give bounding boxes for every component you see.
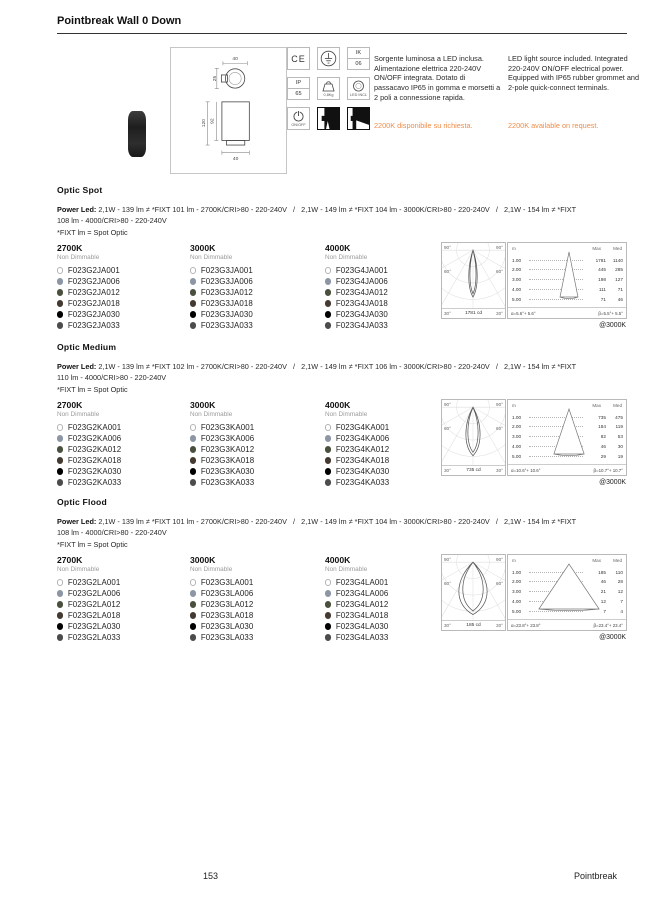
product-code-row: F023G3KA012: [190, 444, 322, 455]
finish-color-dot: [57, 424, 63, 430]
product-code: F023G4KA001: [336, 423, 389, 432]
product-code-row: F023G3KA030: [190, 466, 322, 477]
polar-diagram: 90° 90° 60° 60° 30° 1781 cd 30°: [441, 242, 506, 319]
product-code-row: F023G2KA018: [57, 455, 189, 466]
product-code: F023G2JA030: [68, 310, 120, 319]
product-code: F023G2LA018: [68, 611, 120, 620]
power-led-spec: Power Led: 2,1W - 139 lm ≠ *FIXT 101 lm …: [57, 205, 585, 227]
code-list: F023G3JA001 F023G3JA006 F023: [190, 265, 322, 331]
product-code: F023G2JA012: [68, 288, 120, 297]
optic-section: Optic Medium Power Led: 2,1W - 139 lm ≠ …: [57, 342, 627, 494]
product-code-row: F023G3KA033: [190, 477, 322, 488]
fixt-note: *FIXT lm = Spot Optic: [57, 385, 128, 394]
product-code: F023G2JA001: [68, 266, 120, 275]
finish-color-dot: [57, 435, 63, 441]
lux-med: 1140: [606, 258, 623, 263]
product-code: F023G2LA001: [68, 578, 120, 587]
class-1-earth-icon: [317, 47, 340, 70]
dimming-label: Non Dimmable: [57, 411, 189, 418]
distance-m: 4.00: [512, 599, 526, 604]
product-code: F023G4KA012: [336, 445, 389, 454]
product-code-row: F023G2KA012: [57, 444, 189, 455]
dim-bottom-width: 40: [233, 156, 239, 162]
color-temp-header: 4000K: [325, 555, 457, 565]
lux-med: 127: [606, 277, 623, 282]
product-code: F023G3KA018: [201, 456, 254, 465]
product-code: F023G2KA030: [68, 467, 121, 476]
code-list: F023G3LA001 F023G3LA006 F023: [190, 577, 322, 643]
finish-color-dot: [57, 278, 63, 284]
product-code: F023G3JA018: [201, 299, 253, 308]
product-code-row: F023G2KA006: [57, 433, 189, 444]
emission-down-flood-icon: [347, 107, 370, 130]
product-code: F023G4LA012: [336, 600, 388, 609]
distance-m: 5.00: [512, 454, 526, 459]
code-list: F023G2JA001 F023G2JA006 F023: [57, 265, 189, 331]
color-temp-header: 4000K: [325, 400, 457, 410]
distance-m: 1.00: [512, 258, 526, 263]
certification-icons: CE IK 06 IP 65 0,8Kg LED: [287, 47, 370, 130]
finish-color-dot: [190, 612, 196, 618]
code-list: F023G3KA001 F023G3KA006 F023: [190, 422, 322, 488]
finish-color-dot: [325, 322, 331, 328]
cone-diagram: m Max Med 1.00 1781 1140: [507, 242, 627, 319]
cone-diagram: m Max Med 1.00 185 110: [507, 554, 627, 631]
product-code: F023G2JA018: [68, 299, 120, 308]
beam-cone-svg: [534, 250, 604, 306]
product-code-row: F023G3JA006: [190, 276, 322, 287]
lux-med: 285: [606, 267, 623, 272]
dimming-label: Non Dimmable: [325, 411, 457, 418]
page-number: 153: [203, 871, 218, 881]
lux-med: 475: [606, 415, 623, 420]
finish-color-dot: [325, 634, 331, 640]
emission-down-spot-icon: [317, 107, 340, 130]
finish-color-dot: [325, 468, 331, 474]
product-code: F023G3JA006: [201, 277, 253, 286]
finish-color-dot: [57, 311, 63, 317]
finish-color-dot: [57, 612, 63, 618]
candela-value: 1781 cd: [465, 311, 482, 316]
lux-med: 53: [606, 434, 623, 439]
polar-diagram: 90° 90° 60° 60° 30° 185 cd 30°: [441, 554, 506, 631]
dim-total-height: 120: [201, 119, 207, 127]
dimming-label: Non Dimmable: [325, 254, 457, 261]
product-code-row: F023G4JA001: [325, 265, 457, 276]
product-code: F023G2KA006: [68, 434, 121, 443]
product-code-row: F023G4LA001: [325, 577, 457, 588]
finish-color-dot: [325, 457, 331, 463]
dimming-label: Non Dimmable: [190, 254, 322, 261]
product-code-row: F023G3JA018: [190, 298, 322, 309]
finish-color-dot: [190, 634, 196, 640]
product-code-row: F023G2JA030: [57, 309, 189, 320]
lux-med: 71: [606, 287, 623, 292]
code-list: F023G4LA001 F023G4LA006 F023: [325, 577, 457, 643]
cone-diagram: m Max Med 1.00 735 475: [507, 399, 627, 476]
finish-color-dot: [57, 322, 63, 328]
finish-color-dot: [57, 479, 63, 485]
product-code-row: F023G4KA033: [325, 477, 457, 488]
product-code: F023G3KA012: [201, 445, 254, 454]
reference-temp: @3000K: [599, 479, 626, 486]
finish-color-dot: [57, 590, 63, 596]
dimming-label: Non Dimmable: [190, 566, 322, 573]
description-italian: Sorgente luminosa a LED inclusa. Aliment…: [374, 54, 502, 102]
dim-body-height: 92: [210, 118, 216, 124]
finish-color-dot: [190, 601, 196, 607]
product-code: F023G3KA033: [201, 478, 254, 487]
dimension-drawing: 40 25 120 92 40: [170, 47, 287, 174]
product-code-row: F023G3JA033: [190, 320, 322, 331]
color-temp-header: 2700K: [57, 555, 189, 565]
distance-m: 2.00: [512, 267, 526, 272]
temperature-column: 2700K Non Dimmable F023G2JA001: [57, 243, 189, 331]
lux-med: 19: [606, 454, 623, 459]
code-columns: 2700K Non Dimmable F023G2JA001: [57, 243, 627, 335]
product-code-row: F023G2KA033: [57, 477, 189, 488]
product-code: F023G4KA006: [336, 434, 389, 443]
product-code: F023G4JA012: [336, 288, 388, 297]
finish-color-dot: [57, 446, 63, 452]
beam-cone: [554, 409, 584, 456]
finish-color-dot: [325, 612, 331, 618]
finish-color-dot: [57, 267, 63, 273]
product-code: F023G3LA006: [201, 589, 253, 598]
finish-color-dot: [325, 623, 331, 629]
alpha-angle: α=10.6°+ 10.6°: [511, 468, 541, 473]
product-code: F023G2LA006: [68, 589, 120, 598]
lux-med: 46: [606, 297, 623, 302]
product-code-row: F023G2KA001: [57, 422, 189, 433]
finish-color-dot: [57, 300, 63, 306]
temperature-column: 4000K Non Dimmable F023G4JA001: [325, 243, 457, 331]
photometry-panel: 90° 90° 60° 60° 30° 1781 cd 30° m Max Me…: [441, 242, 627, 332]
product-code: F023G2KA018: [68, 456, 121, 465]
lux-med: 7: [606, 599, 623, 604]
photometry-panel: 90° 90° 60° 60° 30° 185 cd 30° m Max Med: [441, 554, 627, 644]
product-code-row: F023G4JA033: [325, 320, 457, 331]
temperature-column: 3000K Non Dimmable F023G3LA001: [190, 555, 322, 643]
lux-med: 12: [606, 589, 623, 594]
product-code-row: F023G4LA033: [325, 632, 457, 643]
product-code-row: F023G3LA018: [190, 610, 322, 621]
product-code: F023G3KA001: [201, 423, 254, 432]
section-title: Optic Flood: [57, 497, 627, 507]
product-code: F023G2LA030: [68, 622, 120, 631]
product-code-row: F023G2LA030: [57, 621, 189, 632]
power-led-label: Power Led:: [57, 205, 96, 214]
product-code: F023G2LA033: [68, 633, 120, 642]
product-code: F023G3LA030: [201, 622, 253, 631]
product-code-row: F023G3LA001: [190, 577, 322, 588]
finish-color-dot: [190, 435, 196, 441]
distance-m: 3.00: [512, 434, 526, 439]
page-title: Pointbreak Wall 0 Down: [57, 15, 181, 27]
product-code: F023G4JA006: [336, 277, 388, 286]
ce-mark-icon: CE: [287, 47, 310, 70]
finish-color-dot: [190, 311, 196, 317]
finish-color-dot: [325, 311, 331, 317]
lux-med: 119: [606, 424, 623, 429]
product-code: F023G2KA001: [68, 423, 121, 432]
product-code: F023G4LA033: [336, 633, 388, 642]
reference-temp: @3000K: [599, 322, 626, 329]
product-code-row: F023G2JA001: [57, 265, 189, 276]
product-code-row: F023G3KA018: [190, 455, 322, 466]
finish-color-dot: [57, 457, 63, 463]
product-photo: [128, 111, 146, 157]
polar-diagram: 90° 90° 60° 60° 30° 735 cd 30°: [441, 399, 506, 476]
beam-cone: [539, 564, 599, 611]
dimming-label: Non Dimmable: [57, 566, 189, 573]
product-code: F023G2KA012: [68, 445, 121, 454]
product-code-row: F023G4LA012: [325, 599, 457, 610]
product-code: F023G3JA001: [201, 266, 253, 275]
distance-m: 1.00: [512, 415, 526, 420]
section-title: Optic Spot: [57, 185, 627, 195]
product-code-row: F023G2LA012: [57, 599, 189, 610]
finish-color-dot: [190, 479, 196, 485]
distance-m: 1.00: [512, 570, 526, 575]
product-code-row: F023G2LA006: [57, 588, 189, 599]
finish-color-dot: [325, 278, 331, 284]
temperature-column: 3000K Non Dimmable F023G3JA001: [190, 243, 322, 331]
lux-med: 110: [606, 570, 623, 575]
product-code-row: F023G3LA006: [190, 588, 322, 599]
product-code-row: F023G4JA012: [325, 287, 457, 298]
fixt-note: *FIXT lm = Spot Optic: [57, 228, 128, 237]
code-list: F023G4KA001 F023G4KA006 F023: [325, 422, 457, 488]
product-code: F023G2LA012: [68, 600, 120, 609]
product-code-row: F023G4KA012: [325, 444, 457, 455]
product-code-row: F023G2JA018: [57, 298, 189, 309]
candela-value: 185 cd: [466, 623, 480, 628]
beam-cone: [560, 252, 578, 299]
footer-brand: Pointbreak: [574, 871, 617, 881]
distance-m: 4.00: [512, 444, 526, 449]
product-code: F023G4LA030: [336, 622, 388, 631]
product-code: F023G4LA006: [336, 589, 388, 598]
product-code-row: F023G3JA030: [190, 309, 322, 320]
product-code-row: F023G2JA033: [57, 320, 189, 331]
ik-rating-icon: IK 06: [347, 47, 370, 70]
dimension-drawing-svg: 40 25 120 92 40: [171, 48, 286, 173]
product-code: F023G4KA030: [336, 467, 389, 476]
finish-color-dot: [57, 289, 63, 295]
product-code: F023G4KA018: [336, 456, 389, 465]
distance-m: 2.00: [512, 579, 526, 584]
color-temp-header: 2700K: [57, 243, 189, 253]
finish-color-dot: [190, 457, 196, 463]
product-code: F023G3LA012: [201, 600, 253, 609]
ip-rating-icon: IP 65: [287, 77, 310, 100]
led-included-icon: LED INCL: [347, 77, 370, 100]
finish-color-dot: [325, 300, 331, 306]
product-code-row: F023G4JA030: [325, 309, 457, 320]
beta-angle: β=10.7°+ 10.7°: [594, 468, 623, 473]
beam-cone-svg: [534, 407, 604, 463]
finish-color-dot: [325, 446, 331, 452]
product-code: F023G2JA033: [68, 321, 120, 330]
finish-color-dot: [325, 289, 331, 295]
distance-m: 3.00: [512, 589, 526, 594]
color-temp-header: 3000K: [190, 555, 322, 565]
product-code-row: F023G3LA030: [190, 621, 322, 632]
product-code-row: F023G2JA006: [57, 276, 189, 287]
product-code-row: F023G2LA001: [57, 577, 189, 588]
finish-color-dot: [57, 634, 63, 640]
temperature-column: 4000K Non Dimmable F023G4LA001: [325, 555, 457, 643]
power-led-label: Power Led:: [57, 362, 96, 371]
product-code-row: F023G2KA030: [57, 466, 189, 477]
code-columns: 2700K Non Dimmable F023G2KA001: [57, 400, 627, 492]
finish-color-dot: [325, 590, 331, 596]
product-code-row: F023G3KA001: [190, 422, 322, 433]
finish-color-dot: [325, 479, 331, 485]
power-led-spec: Power Led: 2,1W - 139 lm ≠ *FIXT 102 lm …: [57, 362, 585, 384]
temperature-column: 2700K Non Dimmable F023G2KA001: [57, 400, 189, 488]
dimming-label: Non Dimmable: [190, 411, 322, 418]
color-temp-header: 3000K: [190, 400, 322, 410]
dim-head-height: 25: [212, 75, 218, 81]
product-code: F023G4JA033: [336, 321, 388, 330]
alpha-angle: α=5.6°+ 5.6°: [511, 311, 536, 316]
product-code-row: F023G2LA033: [57, 632, 189, 643]
description-english: LED light source included. Integrated 22…: [508, 54, 640, 92]
photometry-panel: 90° 90° 60° 60° 30° 735 cd 30° m Max Med: [441, 399, 627, 489]
note-italian: 2200K disponibile su richiesta.: [374, 121, 473, 130]
finish-color-dot: [190, 289, 196, 295]
product-code-row: F023G3LA012: [190, 599, 322, 610]
power-led-values: 2,1W - 139 lm ≠ *FIXT 102 lm - 2700K/CRI…: [57, 362, 578, 382]
product-code: F023G4JA001: [336, 266, 388, 275]
finish-color-dot: [190, 267, 196, 273]
product-code-row: F023G4KA018: [325, 455, 457, 466]
temperature-column: 2700K Non Dimmable F023G2LA001: [57, 555, 189, 643]
product-code-row: F023G2LA018: [57, 610, 189, 621]
on-off-icon: ON/OFF: [287, 107, 310, 130]
distance-m: 4.00: [512, 287, 526, 292]
dimming-label: Non Dimmable: [57, 254, 189, 261]
finish-color-dot: [325, 579, 331, 585]
finish-color-dot: [190, 278, 196, 284]
alpha-angle: α=23.8°+ 23.8°: [511, 623, 541, 628]
finish-color-dot: [190, 623, 196, 629]
lux-med: 30: [606, 444, 623, 449]
product-code-row: F023G4JA018: [325, 298, 457, 309]
product-code-row: F023G3JA001: [190, 265, 322, 276]
product-code-row: F023G3KA006: [190, 433, 322, 444]
color-temp-header: 3000K: [190, 243, 322, 253]
finish-color-dot: [190, 590, 196, 596]
product-code-row: F023G4JA006: [325, 276, 457, 287]
finish-color-dot: [190, 300, 196, 306]
product-code: F023G4JA030: [336, 310, 388, 319]
product-code-row: F023G3LA033: [190, 632, 322, 643]
note-english: 2200K available on request.: [508, 121, 598, 130]
finish-color-dot: [190, 424, 196, 430]
product-code: F023G3KA030: [201, 467, 254, 476]
product-code: F023G3JA012: [201, 288, 253, 297]
beam-cone-svg: [534, 562, 604, 618]
product-code-row: F023G4KA030: [325, 466, 457, 477]
temperature-column: 3000K Non Dimmable F023G3KA001: [190, 400, 322, 488]
product-code-row: F023G4KA001: [325, 422, 457, 433]
color-temp-header: 4000K: [325, 243, 457, 253]
section-title: Optic Medium: [57, 342, 627, 352]
finish-color-dot: [190, 446, 196, 452]
product-code: F023G3KA006: [201, 434, 254, 443]
product-code: F023G2KA033: [68, 478, 121, 487]
product-code: F023G3JA030: [201, 310, 253, 319]
finish-color-dot: [325, 601, 331, 607]
distance-m: 3.00: [512, 277, 526, 282]
dim-top-width: 40: [232, 56, 238, 62]
product-code: F023G4KA033: [336, 478, 389, 487]
fixt-note: *FIXT lm = Spot Optic: [57, 540, 128, 549]
product-code: F023G4JA018: [336, 299, 388, 308]
product-code-row: F023G3JA012: [190, 287, 322, 298]
product-code-row: F023G4LA006: [325, 588, 457, 599]
product-code-row: F023G4KA006: [325, 433, 457, 444]
product-code: F023G3LA018: [201, 611, 253, 620]
beta-angle: β=23.4°+ 23.4°: [594, 623, 623, 628]
finish-color-dot: [190, 468, 196, 474]
temperature-column: 4000K Non Dimmable F023G4KA001: [325, 400, 457, 488]
power-led-label: Power Led:: [57, 517, 96, 526]
finish-color-dot: [190, 579, 196, 585]
finish-color-dot: [57, 579, 63, 585]
weight-icon: 0,8Kg: [317, 77, 340, 100]
product-code-row: F023G2JA012: [57, 287, 189, 298]
optic-section: Optic Spot Power Led: 2,1W - 139 lm ≠ *F…: [57, 185, 627, 337]
finish-color-dot: [325, 424, 331, 430]
product-code: F023G3JA033: [201, 321, 253, 330]
distance-m: 2.00: [512, 424, 526, 429]
color-temp-header: 2700K: [57, 400, 189, 410]
dimming-label: Non Dimmable: [325, 566, 457, 573]
code-list: F023G4JA001 F023G4JA006 F023: [325, 265, 457, 331]
finish-color-dot: [325, 435, 331, 441]
power-led-spec: Power Led: 2,1W - 139 lm ≠ *FIXT 101 lm …: [57, 517, 585, 539]
product-code: F023G3LA001: [201, 578, 253, 587]
power-led-values: 2,1W - 139 lm ≠ *FIXT 101 lm - 2700K/CRI…: [57, 517, 578, 537]
finish-color-dot: [57, 601, 63, 607]
power-led-values: 2,1W - 139 lm ≠ *FIXT 101 lm - 2700K/CRI…: [57, 205, 578, 225]
code-list: F023G2LA001 F023G2LA006 F023: [57, 577, 189, 643]
code-columns: 2700K Non Dimmable F023G2LA001: [57, 555, 627, 647]
finish-color-dot: [57, 468, 63, 474]
finish-color-dot: [57, 623, 63, 629]
finish-color-dot: [325, 267, 331, 273]
lux-med: 28: [606, 579, 623, 584]
product-code: F023G3LA033: [201, 633, 253, 642]
header-divider: [57, 33, 627, 34]
finish-color-dot: [190, 322, 196, 328]
lux-med: 4: [606, 609, 623, 614]
product-code: F023G4LA001: [336, 578, 388, 587]
product-code: F023G2JA006: [68, 277, 120, 286]
code-list: F023G2KA001 F023G2KA006 F023: [57, 422, 189, 488]
product-code-row: F023G4LA030: [325, 621, 457, 632]
beta-angle: β=5.5°+ 5.5°: [598, 311, 623, 316]
product-code-row: F023G4LA018: [325, 610, 457, 621]
candela-value: 735 cd: [466, 468, 480, 473]
optic-section: Optic Flood Power Led: 2,1W - 139 lm ≠ *…: [57, 497, 627, 649]
distance-m: 5.00: [512, 609, 526, 614]
distance-m: 5.00: [512, 297, 526, 302]
